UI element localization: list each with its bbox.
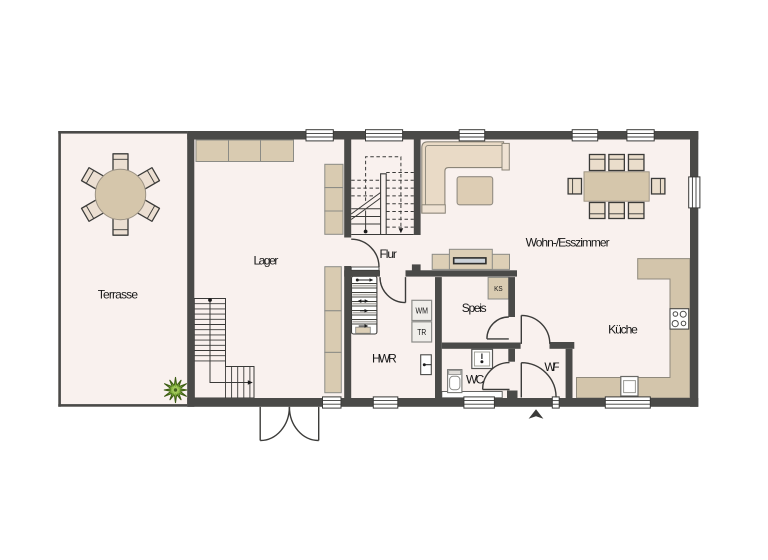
svg-text:KS: KS [494, 284, 503, 293]
svg-text:Küche: Küche [608, 323, 638, 337]
svg-text:Terrasse: Terrasse [98, 287, 139, 301]
svg-text:Wohn-/Esszimmer: Wohn-/Esszimmer [526, 236, 610, 250]
svg-text:Lager: Lager [253, 253, 278, 267]
svg-text:WC: WC [466, 372, 485, 386]
svg-text:WM: WM [416, 306, 429, 315]
svg-text:HWR: HWR [372, 351, 397, 365]
svg-text:Flur: Flur [380, 247, 397, 261]
svg-text:WF: WF [544, 360, 559, 374]
svg-text:TR: TR [417, 328, 426, 337]
svg-text:Speis: Speis [462, 301, 487, 315]
